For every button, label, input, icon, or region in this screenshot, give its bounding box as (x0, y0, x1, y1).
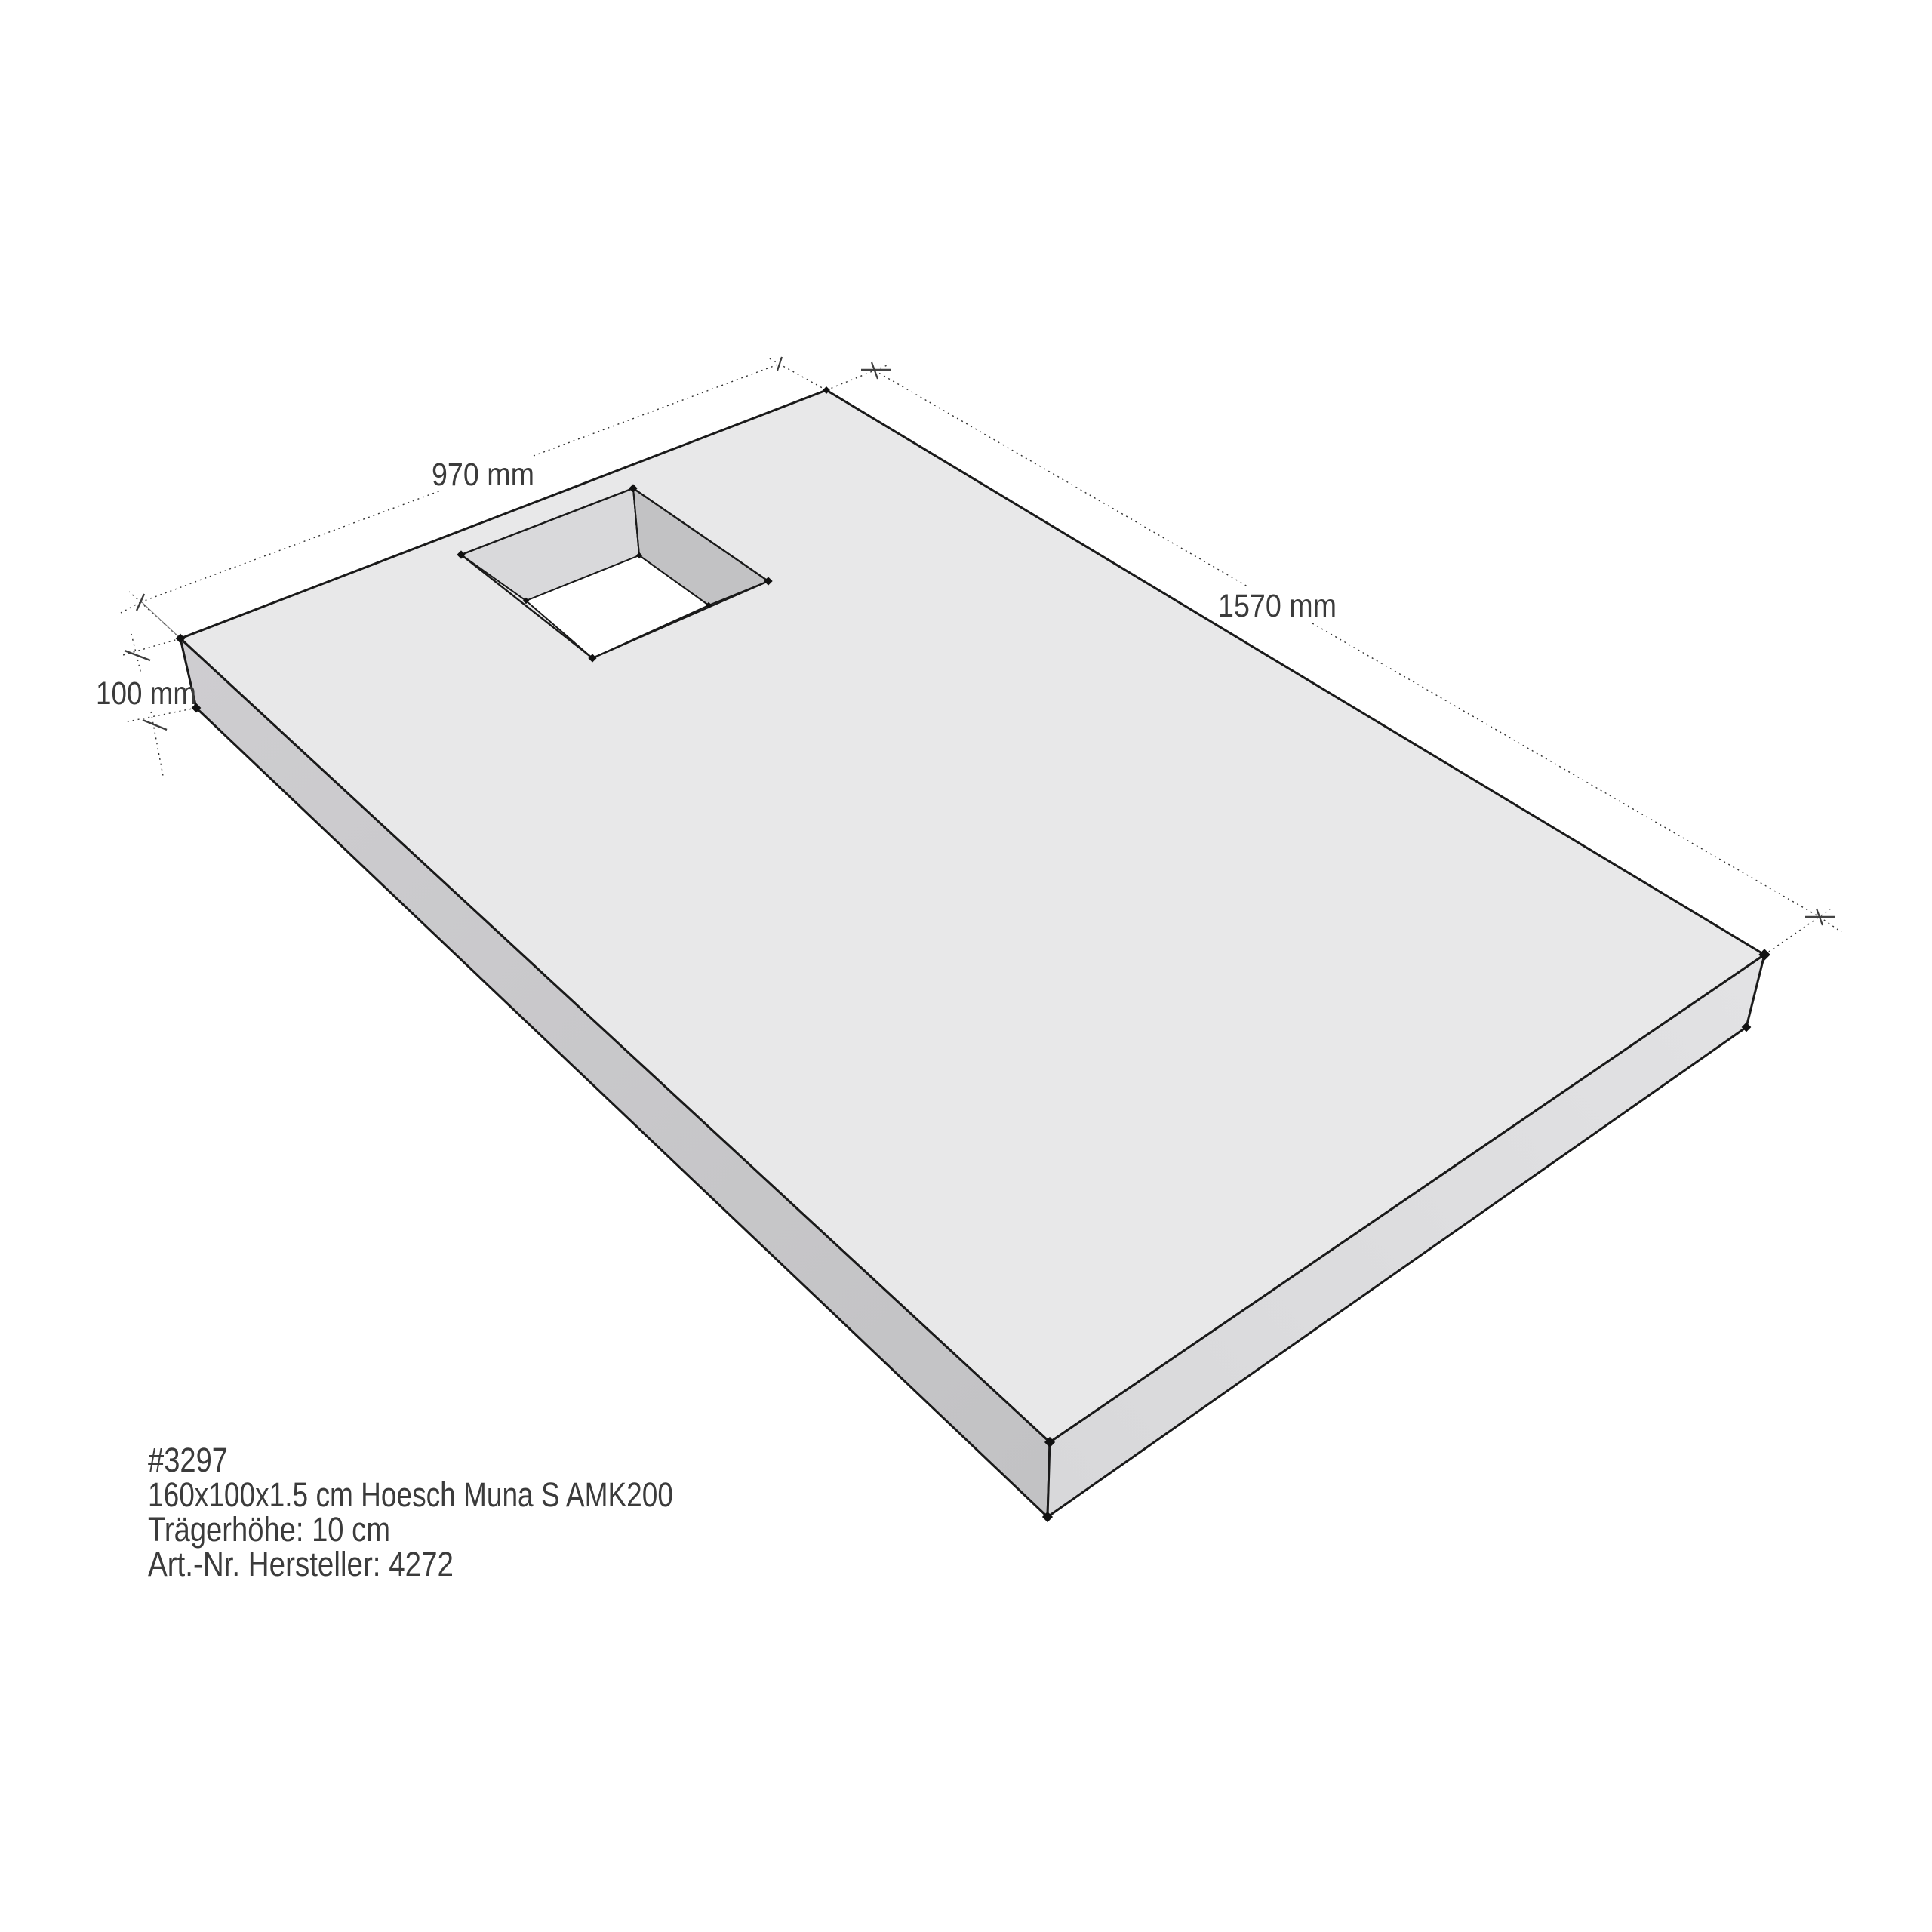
svg-text:970 mm: 970 mm (432, 457, 534, 493)
svg-text:100 mm: 100 mm (96, 675, 196, 712)
svg-text:#3297: #3297 (148, 1441, 228, 1479)
svg-text:1570 mm: 1570 mm (1218, 588, 1337, 624)
svg-text:160x100x1.5 cm Hoesch Muna S A: 160x100x1.5 cm Hoesch Muna S AMK200 (148, 1475, 673, 1514)
svg-text:Trägerhöhe: 10 cm: Trägerhöhe: 10 cm (148, 1510, 390, 1549)
svg-text:Art.-Nr. Hersteller: 4272: Art.-Nr. Hersteller: 4272 (148, 1545, 454, 1583)
